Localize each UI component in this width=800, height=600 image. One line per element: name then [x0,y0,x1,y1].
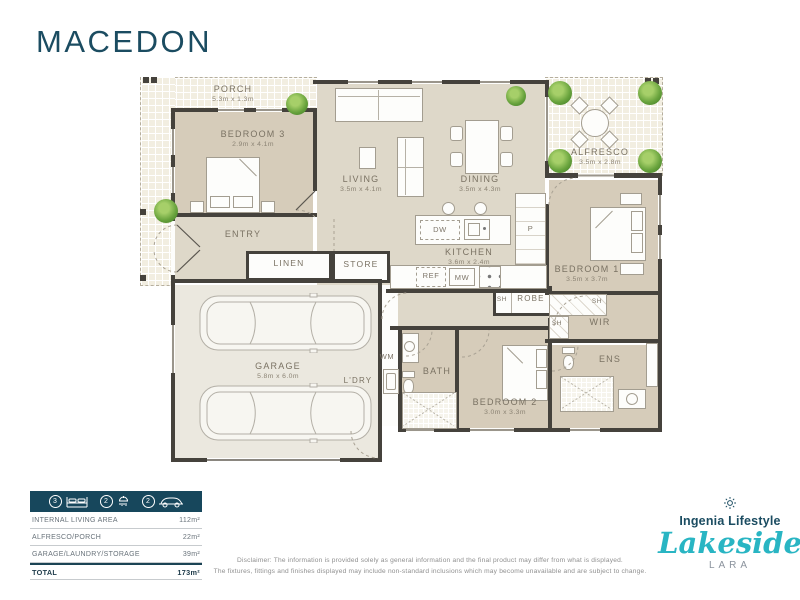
room-name: KITCHEN [425,248,513,258]
room-name: GARAGE [233,362,323,372]
summary-label: GARAGE/LAUNDRY/STORAGE [32,551,140,558]
room-label-living: LIVING 3.5m x 4.1m [317,175,405,193]
room-dims: 3.5m x 4.1m [317,186,405,193]
plant-icon [638,149,662,173]
tub-bowl [386,373,396,390]
disclaimer-line1: Disclaimer: The information is provided … [150,555,710,566]
plant-icon [548,81,572,105]
sofa-back-line [338,96,420,97]
pillow [233,196,253,208]
room-label-bath: BATH [415,367,459,377]
feature-bathrooms: 2 [100,495,131,508]
shelf-label: SH [587,298,607,305]
room-name: BATH [415,367,459,377]
room-label-ens: ENS [588,355,632,365]
room-label-store: STORE [334,260,388,269]
window [470,428,514,432]
pillow [536,349,547,368]
room-label-entry: ENTRY [198,230,288,240]
summary-row: ALFRESCO/PORCH 22m² [30,529,202,546]
wall-segment [171,108,175,462]
wall-segment [171,279,382,283]
fridge-label: REF [416,271,446,280]
window [256,108,282,112]
coffee-table [359,147,376,169]
bedroom-count: 3 [49,495,62,508]
summary-label: INTERNAL LIVING AREA [32,517,118,524]
room-name: ALFRESCO [561,148,639,158]
location-name: LARA [655,560,800,571]
room-dims: 3.5m x 3.7m [543,276,631,283]
wall-segment [171,458,207,462]
wall-segment [386,289,548,293]
pillow [631,233,643,253]
room-label-bedroom2: BEDROOM 2 3.0m x 3.3m [462,398,548,416]
toilet-bowl [563,355,574,370]
feature-bedrooms: 3 [49,495,89,508]
window [348,80,378,84]
pillow [536,370,547,389]
room-label-bedroom1: BEDROOM 1 3.5m x 3.7m [543,265,631,283]
floor-plan: PORCH 5.3m x 1.3m BEDROOM 3 2.9m x 4.1m … [140,75,665,470]
room-dims: 2.9m x 4.1m [208,141,298,148]
shelf-label: SH [547,320,567,327]
room-name: BEDROOM 2 [462,398,548,408]
window [578,173,614,178]
room-label-linen: LINEN [248,259,330,268]
summary-row: INTERNAL LIVING AREA 112m² [30,512,202,529]
room-label-alfresco: ALFRESCO 3.5m x 2.8m [561,148,639,166]
porch-post [140,275,146,281]
room-name: ENTRY [198,230,288,240]
porch-post [140,209,146,215]
summary-value: 112m² [179,517,200,524]
room-name: BEDROOM 3 [208,130,298,140]
shower [402,392,457,429]
room-label-laundry: L'DRY [334,377,382,386]
car-icon [158,495,184,508]
shower-icon [116,495,131,508]
brand-logo: Ingenia Lifestyle Lakeside LARA [655,496,800,571]
room-dims: 5.8m x 6.0m [233,373,323,380]
summary-header: 3 2 2 [30,491,202,512]
room-name: STORE [334,260,388,269]
car-icon [198,383,373,443]
nightstand [620,193,642,205]
dining-chair [450,152,463,167]
garage-door [207,459,340,461]
wall-segment [545,339,662,343]
bed-icon [65,495,89,508]
shower [560,376,614,412]
sink-tap [483,227,486,230]
sun-icon [723,496,737,509]
room-name: DINING [436,175,524,185]
porch-post [143,77,149,83]
room-name: LINEN [248,259,330,268]
sofa [335,88,423,122]
sofa-cushion-line [378,90,379,120]
plant-icon [638,81,662,105]
room-label-robe: ROBE [510,295,552,304]
room-name: ROBE [510,295,552,304]
room-label-bedroom3: BEDROOM 3 2.9m x 4.1m [208,130,298,148]
chaise-cushion-line [398,167,423,168]
dining-chair [450,126,463,141]
window [171,325,175,373]
porch-post [151,77,157,83]
summary-label: ALFRESCO/PORCH [32,534,101,541]
dining-table [465,120,499,174]
page-title: MACEDON [36,24,212,60]
room-name: PORCH [178,85,288,95]
nightstand [261,201,275,213]
brochure-page: MACEDON [0,0,800,600]
room-label-kitchen: KITCHEN 3.6m x 2.4m [425,248,513,266]
plant-icon [506,86,526,106]
dining-chair [500,152,513,167]
room-label-dining: DINING 3.5m x 4.3m [436,175,524,193]
kitchen-stool [442,202,455,215]
community-name: Lakeside [655,528,800,558]
disclaimer: Disclaimer: The information is provided … [150,555,710,577]
ens-bench [646,343,658,387]
pillow [210,196,230,208]
basin [404,341,415,352]
window [171,167,175,193]
window [218,108,244,112]
feature-cars: 2 [142,495,184,508]
room-name: BEDROOM 1 [543,265,631,275]
wall-segment [378,279,382,462]
pillow [631,211,643,231]
room-dims: 3.5m x 2.8m [561,159,639,166]
car-icon [198,293,373,353]
porch-tiles-side [140,77,175,286]
toilet-tank [402,371,415,378]
wall-segment [390,326,552,330]
room-dims: 5.3m x 1.3m [178,96,288,103]
room-name: LIVING [317,175,405,185]
room-name: L'DRY [334,377,382,386]
wall-segment [171,213,317,217]
pantry-label: P [517,224,544,233]
room-label-garage: GARAGE 5.8m x 6.0m [233,362,323,380]
car-count: 2 [142,495,155,508]
window [171,129,175,155]
toilet-tank [562,347,575,354]
plant-icon [286,93,308,115]
entry-door-opening [171,221,175,275]
nightstand [190,201,204,213]
room-label-porch: PORCH 5.3m x 1.3m [178,85,288,103]
window [658,235,662,259]
outdoor-table [581,109,609,137]
summary-value: 22m² [183,534,200,541]
bathroom-count: 2 [100,495,113,508]
basin [626,393,638,405]
window [412,80,442,84]
wall-segment [340,458,382,462]
sliding-door [545,97,549,161]
window [480,80,510,84]
dishwasher-label: DW [427,225,453,234]
microwave-label: MW [449,273,475,282]
room-dims: 3.0m x 3.3m [462,409,548,416]
sink-bowl [468,223,480,236]
window [570,428,600,432]
summary-label: TOTAL [32,568,57,577]
washing-machine-label: WM [374,352,400,361]
kitchen-stool [474,202,487,215]
room-name: WIR [582,318,618,328]
room-label-wir: WIR [582,318,618,328]
room-name: ENS [588,355,632,365]
window [658,195,662,225]
disclaimer-line2: The fixtures, fittings and finishes disp… [150,566,710,577]
shelf-label: SH [492,296,512,303]
room-dims: 3.6m x 2.4m [425,259,513,266]
dining-chair [500,126,513,141]
cooktop [479,266,501,288]
room-dims: 3.5m x 4.3m [436,186,524,193]
plant-icon [154,199,178,223]
